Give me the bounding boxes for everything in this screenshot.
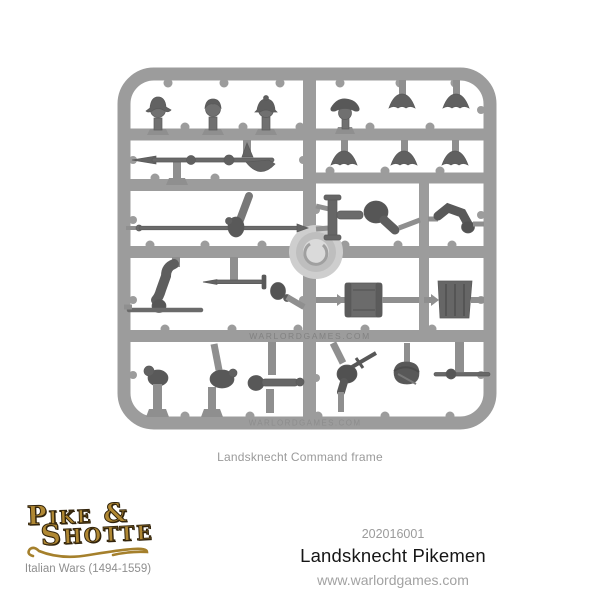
logo-tagline: Italian Wars (1494-1559)	[14, 563, 162, 575]
part-pouch	[394, 343, 419, 384]
pike-and-shotte-logo: Pike & Shotte Italian Wars (1494-1559)	[14, 502, 162, 575]
part-staff-with-hand	[434, 342, 490, 379]
part-arm	[428, 208, 484, 233]
part-feathered-hat	[443, 80, 469, 108]
sprue-watermark-bottom: WARLORDGAMES.COM	[249, 419, 362, 428]
sprue-caption: Landsknecht Command frame	[0, 450, 600, 464]
part-feathered-hat	[389, 80, 415, 108]
sprue-photo: WARLORDGAMES.COM WARLORDGAMES.COM	[0, 0, 600, 470]
product-image: WARLORDGAMES.COM WARLORDGAMES.COM	[0, 0, 600, 600]
product-info: 202016001 Landsknecht Pikemen www.warlor…	[283, 527, 503, 588]
part-fluted-drum	[424, 281, 484, 318]
part-trumpet	[248, 342, 304, 413]
part-feathered-hat	[331, 140, 357, 165]
website-url: www.warlordgames.com	[283, 572, 503, 588]
part-bugle-with-arm	[316, 195, 420, 240]
product-code: 202016001	[283, 527, 503, 541]
logo-line2: Shotte	[22, 515, 171, 551]
part-feathered-hat	[391, 140, 417, 165]
sprue-watermark: WARLORDGAMES.COM	[249, 331, 371, 341]
part-pike-with-hand	[126, 196, 308, 237]
part-bare-head	[202, 99, 224, 135]
part-fist	[144, 366, 169, 417]
part-feathered-hat	[442, 140, 468, 165]
part-bent-arm	[124, 257, 201, 313]
part-drum	[316, 283, 419, 317]
part-sword-with-hand	[203, 257, 304, 307]
part-hand	[201, 344, 237, 417]
part-helmet-head	[255, 96, 277, 136]
part-arm-with-dagger	[333, 343, 376, 412]
product-title: Landsknecht Pikemen	[283, 545, 503, 567]
